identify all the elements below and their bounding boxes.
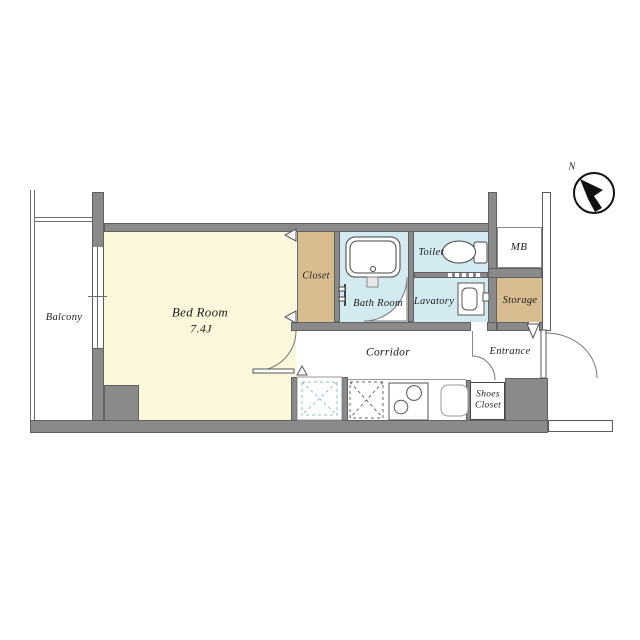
shower-mixer-icon: [339, 284, 345, 306]
washer-door-marker: [297, 366, 307, 375]
storage-door-marker: [527, 324, 539, 338]
sink-icon: [441, 385, 468, 416]
entrance-door-leaf: [541, 330, 546, 378]
bedroom-door-leaf: [253, 369, 294, 373]
fixtures-overlay: [0, 0, 640, 640]
bathroom-label: Bath Room: [353, 298, 403, 310]
shoes-door-arc: [472, 356, 495, 380]
bedroom-door-arc: [255, 331, 296, 371]
lavatory-label: Lavatory: [414, 296, 454, 308]
corridor-label: Corridor: [366, 347, 410, 360]
toilet-icon: [443, 241, 488, 263]
north-compass-icon: [574, 173, 614, 213]
shoes-closet-label: Shoes Closet: [475, 389, 501, 410]
closet-door-marker-bottom: [285, 311, 296, 323]
toilet-label: Toilet: [418, 247, 443, 259]
balcony-label: Balcony: [46, 312, 83, 324]
bedroom-size-label: 7.4J: [190, 322, 212, 335]
bedroom-label: Bed Room: [172, 306, 228, 321]
closet-label: Closet: [302, 270, 329, 281]
entrance-label: Entrance: [490, 346, 531, 358]
fridge-space-icon: [350, 382, 383, 418]
washbasin-icon: [458, 283, 489, 315]
shoes-closet-label-line2: Closet: [475, 400, 501, 410]
entrance-door-arc: [546, 333, 597, 378]
meter-box-label: MB: [511, 241, 527, 253]
floorplan-canvas: Balcony Bed Room 7.4J Closet Bath Room T…: [0, 0, 640, 640]
bath-faucet-deck: [367, 277, 378, 287]
closet-door-marker-top: [285, 229, 296, 241]
shoes-closet-label-line1: Shoes: [476, 389, 500, 399]
washer-space-icon: [297, 377, 342, 420]
stove-icon: [389, 383, 428, 420]
compass-north-label: N: [569, 161, 576, 172]
storage-label: Storage: [503, 295, 538, 307]
